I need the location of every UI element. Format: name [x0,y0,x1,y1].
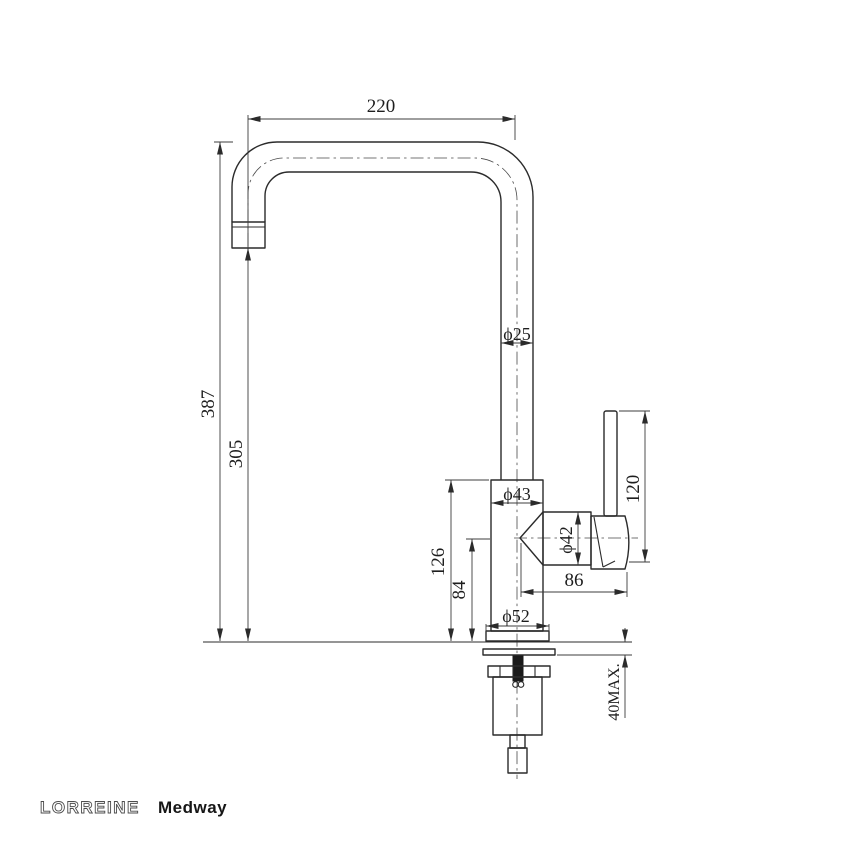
dim-40max-label: 40MAX. [606,663,623,720]
dim-86-label: 86 [565,570,584,591]
dim-220-label: 220 [367,96,396,117]
dim-305-label: 305 [226,440,247,469]
tube-centerline [248,158,517,779]
spout-outlet [232,222,265,248]
dim-120-label: 120 [623,475,644,504]
spout-arch-inner [265,172,501,480]
model-name: Medway [158,798,227,817]
valve-cap-detail-2 [603,561,615,567]
stud-eye-right [518,682,524,688]
dim-d42-label: ϕ42 [556,526,576,553]
washer [483,649,555,655]
valve-cone [520,512,543,565]
dim-d43-label: ϕ43 [503,484,530,504]
supply-stem [510,735,525,748]
supply-end-block [508,748,527,773]
faucet-technical-drawing: 220 387 305 ϕ25 ϕ43 ϕ42 86 120 126 84 ϕ5… [0,0,850,850]
dim-387-label: 387 [198,390,219,419]
valve-cap-detail-1 [594,517,603,567]
stud-eye-left [513,682,519,688]
base-flange [486,631,549,641]
brand-logo: LORREINE [40,798,140,817]
handle-lever [604,411,617,516]
dim-84-label: 84 [449,580,470,600]
dim-d52-label: ϕ52 [502,606,529,626]
drawing-canvas: 220 387 305 ϕ25 ϕ43 ϕ42 86 120 126 84 ϕ5… [0,0,850,850]
spout-arch-outer [232,142,533,480]
dim-d25-label: ϕ25 [503,324,530,344]
dim-126-label: 126 [428,548,449,577]
valve-cap [591,516,629,569]
